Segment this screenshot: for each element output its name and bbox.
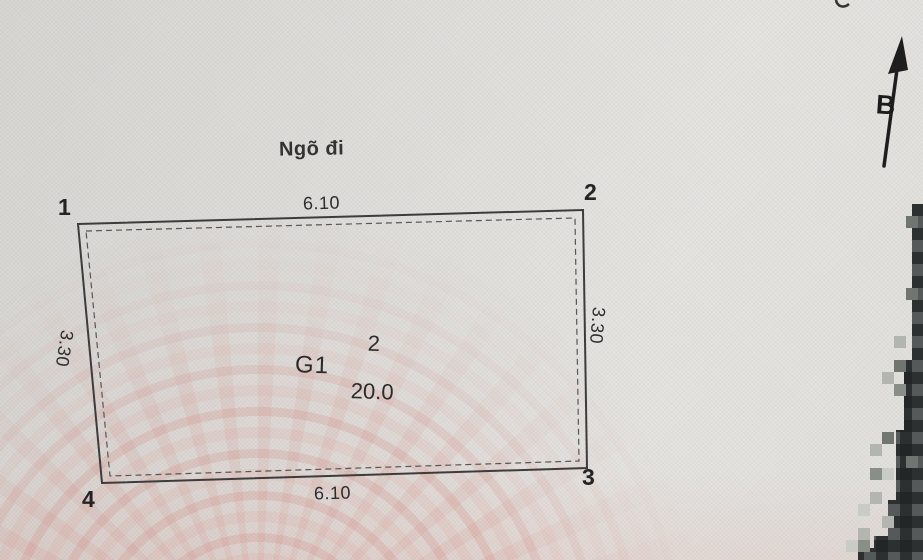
scan-artifact-mark [836,0,849,7]
parcel-number-label: 2 [345,331,402,357]
parcel-area-label: 20.0 [344,379,401,405]
dimension-bottom-label: 6.10 [314,483,352,505]
dimension-right-label: 3.30 [584,301,609,351]
dimension-top-label: 6.10 [303,193,341,215]
parcel-label-group: G1 2 20.0 [294,329,402,405]
corner-3-label: 3 [582,464,595,491]
censored-mosaic [846,204,923,560]
corner-1-label: 1 [58,194,71,221]
line-drawing [0,0,923,560]
road-label: Ngõ đi [279,137,345,161]
corner-4-label: 4 [82,486,95,513]
corner-2-label: 2 [584,179,597,206]
parcel-fraction: 2 20.0 [344,331,402,405]
cadastral-sketch: Ngõ đi 6.10 6.10 3.30 3.30 1 2 3 4 G1 2 … [0,0,923,560]
north-label: B [875,89,897,121]
fraction-bar [373,353,374,380]
parcel-code-label: G1 [295,351,330,380]
